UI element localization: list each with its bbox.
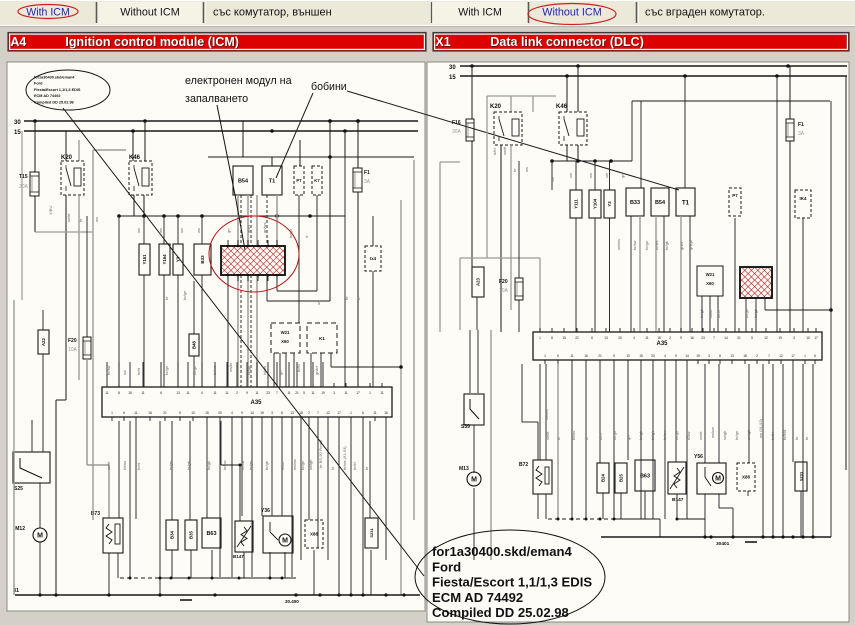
- svg-text:5: 5: [613, 354, 615, 358]
- svg-text:br/gb: br/gb: [753, 308, 758, 318]
- svg-text:11: 11: [186, 391, 190, 395]
- svg-text:13: 13: [290, 411, 294, 415]
- svg-text:12: 12: [326, 411, 330, 415]
- svg-text:F1: F1: [798, 122, 804, 128]
- svg-text:gn/rt: gn/rt: [246, 224, 251, 233]
- svg-text:br/sw: br/sw: [662, 430, 667, 440]
- svg-text:M13: M13: [459, 466, 469, 472]
- svg-text:3A: 3A: [364, 179, 371, 185]
- svg-text:br/bl: br/bl: [352, 462, 357, 470]
- svg-text:ws/rt: ws/rt: [698, 431, 703, 440]
- svg-text:18: 18: [743, 354, 747, 358]
- svg-text:br/gb: br/gb: [186, 460, 191, 470]
- svg-text:sw/gb: sw/gb: [308, 459, 313, 470]
- svg-text:30.400: 30.400: [285, 599, 299, 604]
- svg-text:K7: K7: [314, 178, 320, 183]
- svg-text:T1: T1: [269, 179, 275, 185]
- svg-text:br/gk: br/gk: [264, 461, 269, 470]
- svg-text:20: 20: [618, 336, 622, 340]
- svg-text:A22: A22: [41, 337, 46, 345]
- svg-text:30: 30: [449, 65, 456, 71]
- svg-text:B54: B54: [238, 179, 249, 185]
- svg-text:6: 6: [362, 411, 364, 415]
- svg-text:Fiesta/Escort 1,1/1,3 EDIS: Fiesta/Escort 1,1/1,3 EDIS: [34, 88, 81, 92]
- svg-text:18: 18: [657, 336, 661, 340]
- svg-text:15: 15: [128, 391, 132, 395]
- svg-text:sw/rt: sw/rt: [106, 461, 111, 470]
- svg-text:Y161: Y161: [142, 254, 147, 265]
- svg-text:M: M: [715, 476, 721, 483]
- svg-text:sw/rt: sw/rt: [708, 309, 713, 318]
- svg-text:br/rt: br/rt: [598, 432, 603, 440]
- svg-text:19: 19: [321, 391, 325, 395]
- svg-text:K20: K20: [61, 155, 73, 161]
- svg-text:13: 13: [730, 354, 734, 358]
- svg-text:sw/rt: sw/rt: [502, 146, 507, 155]
- svg-text:16: 16: [384, 411, 388, 415]
- svg-text:ws: ws: [94, 217, 99, 222]
- svg-text:for1a30400.skd/eman4: for1a30400.skd/eman4: [432, 544, 572, 559]
- svg-text:30A: 30A: [452, 129, 462, 135]
- svg-text:br/rt: br/rt: [136, 462, 141, 470]
- svg-text:W21: W21: [706, 272, 715, 277]
- svg-text:15: 15: [14, 130, 21, 136]
- svg-text:8: 8: [281, 411, 283, 415]
- svg-text:3: 3: [793, 336, 795, 340]
- svg-text:21: 21: [295, 391, 299, 395]
- svg-text:7: 7: [317, 411, 319, 415]
- svg-text:9: 9: [680, 336, 682, 340]
- svg-text:sw: sw: [604, 173, 609, 178]
- svg-text:16: 16: [690, 336, 694, 340]
- svg-text:sw: sw: [550, 177, 555, 182]
- svg-text:6: 6: [814, 354, 816, 358]
- svg-text:gn: gn: [226, 229, 231, 233]
- svg-text:br/gb: br/gb: [699, 308, 704, 318]
- svg-text:4: 4: [201, 391, 203, 395]
- svg-text:19: 19: [778, 336, 782, 340]
- svg-text:4: 4: [231, 411, 233, 415]
- svg-text:5: 5: [751, 336, 753, 340]
- svg-text:gn: gn: [620, 174, 625, 178]
- svg-text:11: 11: [255, 391, 259, 395]
- svg-text:запалването: запалването: [185, 93, 248, 105]
- svg-text:11: 11: [213, 391, 217, 395]
- svg-text:sw/ws: sw/ws: [616, 239, 621, 250]
- svg-text:W21: W21: [281, 330, 290, 335]
- svg-text:T1: T1: [682, 200, 690, 206]
- svg-text:16: 16: [148, 411, 152, 415]
- svg-text:M: M: [282, 538, 288, 545]
- svg-text:br/gk: br/gk: [650, 431, 655, 440]
- svg-text:sw: sw: [316, 300, 321, 305]
- svg-text:B24: B24: [601, 473, 606, 481]
- svg-text:21: 21: [598, 354, 602, 358]
- svg-text:ws: ws: [196, 228, 201, 233]
- svg-text:15: 15: [449, 75, 456, 81]
- svg-text:swgb: swgb: [722, 430, 727, 440]
- svg-text:2: 2: [669, 336, 671, 340]
- svg-text:5: 5: [179, 411, 181, 415]
- svg-text:17: 17: [337, 411, 341, 415]
- svg-text:br/gn: br/gn: [612, 431, 617, 440]
- svg-text:br/bld: br/bld: [782, 430, 787, 440]
- svg-text:IK4: IK4: [799, 196, 807, 201]
- svg-text:ws: ws: [588, 173, 593, 178]
- svg-text:F16: F16: [452, 120, 461, 126]
- svg-text:11: 11: [105, 391, 109, 395]
- svg-text:B147: B147: [233, 554, 244, 559]
- svg-text:10: 10: [806, 336, 810, 340]
- svg-text:Y104: Y104: [593, 198, 598, 209]
- svg-text:7: 7: [713, 336, 715, 340]
- svg-text:sw: sw: [568, 173, 573, 178]
- svg-text:20: 20: [651, 354, 655, 358]
- svg-text:11: 11: [225, 391, 229, 395]
- svg-text:X1: X1: [435, 35, 450, 49]
- svg-text:11: 11: [570, 354, 574, 358]
- svg-text:S231: S231: [369, 528, 374, 538]
- svg-text:sw: sw: [122, 370, 127, 375]
- svg-text:Ix4: Ix4: [370, 256, 377, 261]
- svg-text:B48: B48: [192, 340, 197, 348]
- svg-text:gn: gn: [626, 436, 631, 440]
- svg-text:2: 2: [308, 411, 310, 415]
- svg-text:7: 7: [768, 354, 770, 358]
- svg-text:K46: K46: [556, 104, 568, 110]
- svg-text:11: 11: [645, 336, 649, 340]
- svg-text:S25: S25: [14, 486, 23, 492]
- svg-text:br/rt: br/rt: [136, 367, 141, 375]
- svg-text:bl/ws: bl/ws: [571, 431, 576, 440]
- svg-text:Ford: Ford: [34, 82, 43, 86]
- svg-text:15: 15: [562, 336, 566, 340]
- svg-text:1: 1: [369, 391, 371, 395]
- svg-text:бобини: бобини: [311, 81, 347, 93]
- svg-text:Y36: Y36: [261, 508, 270, 514]
- svg-text:X88: X88: [310, 532, 319, 537]
- svg-text:ws/rt: ws/rt: [280, 461, 285, 470]
- svg-text:17: 17: [356, 391, 360, 395]
- svg-text:ws (91-93): ws (91-93): [758, 418, 763, 438]
- svg-text:20A: 20A: [19, 184, 29, 190]
- svg-text:10A: 10A: [499, 288, 509, 294]
- svg-text:sw/rt: sw/rt: [66, 213, 71, 222]
- svg-text:Ford: Ford: [432, 559, 461, 574]
- svg-text:11: 11: [311, 391, 315, 395]
- svg-text:9: 9: [241, 411, 243, 415]
- svg-text:5: 5: [303, 391, 305, 395]
- svg-text:23: 23: [266, 391, 270, 395]
- svg-text:Without ICM: Without ICM: [542, 7, 601, 19]
- svg-text:sw/ws: sw/ws: [544, 409, 549, 420]
- svg-text:1: 1: [111, 411, 113, 415]
- svg-text:19: 19: [260, 411, 264, 415]
- svg-text:br/gn: br/gn: [168, 461, 173, 470]
- svg-text:F20: F20: [499, 279, 508, 285]
- svg-text:3: 3: [333, 391, 335, 395]
- svg-text:8: 8: [719, 354, 721, 358]
- svg-text:bl: bl: [556, 437, 561, 440]
- svg-text:br/sw: br/sw: [222, 460, 227, 470]
- svg-text:sw: sw: [179, 228, 184, 233]
- svg-text:ws/sw: ws/sw: [292, 459, 297, 470]
- svg-text:11: 11: [344, 391, 348, 395]
- svg-text:Y/BU: Y/BU: [48, 206, 53, 215]
- svg-text:With ICM: With ICM: [458, 7, 502, 19]
- svg-text:br/ws (91-93): br/ws (91-93): [342, 446, 347, 470]
- svg-text:B54: B54: [655, 200, 666, 206]
- svg-text:br/gn: br/gn: [300, 461, 305, 470]
- svg-text:gn/ws: gn/ws: [262, 223, 267, 233]
- svg-text:br/gb: br/gb: [192, 365, 197, 375]
- svg-text:Ignition control module (ICM): Ignition control module (ICM): [65, 35, 239, 49]
- svg-text:rt/sw: rt/sw: [686, 431, 691, 440]
- svg-text:10: 10: [191, 411, 195, 415]
- svg-text:15: 15: [205, 411, 209, 415]
- svg-text:8: 8: [118, 391, 120, 395]
- svg-text:br/sw: br/sw: [240, 460, 245, 470]
- svg-text:B63: B63: [640, 474, 650, 480]
- svg-text:K1: K1: [319, 336, 325, 341]
- svg-text:br/bl: br/bl: [770, 432, 775, 440]
- svg-text:br/gb: br/gb: [638, 430, 643, 440]
- svg-text:13: 13: [176, 391, 180, 395]
- svg-text:br/gn: br/gn: [734, 431, 739, 440]
- svg-text:gn/gb: gn/gb: [688, 239, 693, 250]
- svg-text:Without ICM: Without ICM: [120, 7, 179, 19]
- svg-text:br/bl: br/bl: [296, 364, 301, 372]
- svg-text:br/ws: br/ws: [212, 365, 217, 375]
- svg-text:With ICM: With ICM: [26, 7, 70, 19]
- svg-text:gn: gn: [278, 371, 283, 375]
- svg-text:23: 23: [701, 336, 705, 340]
- svg-text:1: 1: [544, 354, 546, 358]
- svg-text:13: 13: [604, 336, 608, 340]
- svg-text:ECM AD 74492: ECM AD 74492: [432, 590, 523, 605]
- svg-text:A35: A35: [250, 400, 262, 406]
- svg-text:със вграден комутатор.: със вграден комутатор.: [645, 7, 765, 19]
- svg-text:11: 11: [134, 411, 138, 415]
- svg-text:15: 15: [639, 354, 643, 358]
- svg-text:B35: B35: [189, 530, 194, 538]
- svg-text:11: 11: [380, 391, 384, 395]
- svg-text:1: 1: [804, 354, 806, 358]
- svg-text:br/bl: br/bl: [716, 310, 721, 318]
- svg-text:br/sw: br/sw: [632, 240, 637, 250]
- svg-text:A23: A23: [476, 277, 481, 285]
- svg-text:B63: B63: [206, 531, 216, 537]
- svg-text:Y164: Y164: [162, 254, 167, 265]
- svg-text:S39: S39: [461, 424, 470, 430]
- svg-text:br/gn: br/gn: [246, 366, 251, 375]
- svg-text:for1a30400.skd/eman4: for1a30400.skd/eman4: [34, 76, 75, 80]
- svg-text:Y3: Y3: [607, 201, 612, 207]
- svg-text:S231: S231: [799, 471, 804, 481]
- svg-text:3: 3: [271, 411, 273, 415]
- svg-text:rt/bl: rt/bl: [492, 148, 497, 155]
- svg-text:sw/gb: sw/gb: [746, 429, 751, 440]
- svg-text:11: 11: [373, 411, 377, 415]
- svg-text:M12: M12: [15, 526, 25, 532]
- svg-text:br/gn: br/gn: [164, 366, 169, 375]
- svg-text:22: 22: [575, 336, 579, 340]
- svg-text:4: 4: [633, 336, 635, 340]
- svg-text:br/gn: br/gn: [248, 461, 253, 470]
- svg-text:11: 11: [141, 391, 145, 395]
- svg-text:2: 2: [756, 354, 758, 358]
- svg-text:A4: A4: [10, 35, 26, 49]
- svg-text:X88: X88: [742, 475, 751, 480]
- svg-text:Y111: Y111: [574, 199, 579, 209]
- svg-text:със комутатор, външен: със комутатор, външен: [213, 7, 332, 19]
- svg-text:A35: A35: [656, 341, 668, 347]
- svg-text:br/gn: br/gn: [288, 229, 293, 238]
- svg-text:F20: F20: [68, 338, 77, 344]
- svg-text:2: 2: [236, 391, 238, 395]
- svg-text:M: M: [471, 477, 477, 484]
- svg-text:X60: X60: [706, 281, 714, 286]
- svg-text:14: 14: [724, 336, 728, 340]
- svg-text:електронен модул на: електронен модул на: [185, 75, 292, 87]
- svg-text:Y56: Y56: [694, 454, 703, 460]
- svg-text:4: 4: [664, 354, 666, 358]
- svg-text:9: 9: [675, 354, 677, 358]
- svg-text:7: 7: [276, 391, 278, 395]
- svg-text:ws/br: ws/br: [228, 362, 233, 372]
- svg-text:sw: sw: [136, 228, 141, 233]
- svg-text:br/gk: br/gk: [206, 461, 211, 470]
- svg-text:T15: T15: [19, 174, 28, 180]
- svg-text:P7: P7: [732, 193, 738, 198]
- svg-text:20: 20: [218, 411, 222, 415]
- svg-text:19: 19: [696, 354, 700, 358]
- svg-text:Fiesta/Escort 1,1/1,3 EDIS: Fiesta/Escort 1,1/1,3 EDIS: [432, 575, 592, 590]
- svg-text:br/ws: br/ws: [654, 240, 659, 250]
- svg-text:B25: B25: [619, 473, 624, 481]
- svg-text:21: 21: [737, 336, 741, 340]
- svg-text:9: 9: [246, 391, 248, 395]
- svg-text:14: 14: [250, 411, 254, 415]
- svg-text:X60: X60: [281, 339, 289, 344]
- svg-text:sw/rt: sw/rt: [545, 431, 550, 440]
- svg-text:Compiled DD 25.02.98: Compiled DD 25.02.98: [432, 605, 569, 620]
- svg-text:30401: 30401: [716, 541, 730, 547]
- svg-text:B33: B33: [200, 255, 205, 264]
- svg-text:11: 11: [287, 391, 291, 395]
- svg-text:6: 6: [123, 411, 125, 415]
- svg-text:gn/rt: gn/rt: [679, 241, 684, 250]
- svg-text:br/gn: br/gn: [182, 291, 187, 300]
- svg-text:21: 21: [163, 411, 167, 415]
- svg-text:F1: F1: [364, 170, 370, 176]
- svg-text:K46: K46: [129, 155, 141, 161]
- svg-text:10A: 10A: [68, 347, 78, 353]
- svg-text:6: 6: [557, 354, 559, 358]
- svg-text:P7: P7: [296, 178, 302, 183]
- svg-text:3: 3: [708, 354, 710, 358]
- svg-text:6: 6: [591, 336, 593, 340]
- svg-text:br/gn: br/gn: [674, 431, 679, 440]
- svg-text:8: 8: [551, 336, 553, 340]
- svg-text:B72: B72: [519, 462, 528, 468]
- svg-text:M: M: [37, 533, 43, 540]
- svg-text:br/sw: br/sw: [106, 365, 111, 375]
- svg-text:Data link connector (DLC): Data link connector (DLC): [490, 35, 644, 49]
- svg-text:12: 12: [764, 336, 768, 340]
- svg-text:30: 30: [14, 120, 21, 126]
- svg-text:B73: B73: [91, 511, 100, 517]
- svg-text:10: 10: [626, 354, 630, 358]
- svg-text:Compiled DD 25.02.98: Compiled DD 25.02.98: [34, 100, 74, 104]
- svg-text:1: 1: [539, 336, 541, 340]
- svg-text:17: 17: [814, 336, 818, 340]
- svg-text:B147: B147: [672, 497, 684, 503]
- svg-text:16: 16: [584, 354, 588, 358]
- svg-text:ECM AD 74492: ECM AD 74492: [34, 94, 60, 98]
- svg-text:br/gn: br/gn: [644, 241, 649, 250]
- svg-text:B33: B33: [630, 200, 640, 206]
- svg-text:6: 6: [160, 391, 162, 395]
- svg-text:3A: 3A: [798, 131, 805, 137]
- svg-text:br/gn: br/gn: [744, 309, 749, 318]
- svg-text:ws: ws: [524, 167, 529, 172]
- svg-text:17: 17: [791, 354, 795, 358]
- svg-text:1: 1: [350, 411, 352, 415]
- svg-text:B34: B34: [170, 530, 175, 538]
- svg-text:K20: K20: [490, 104, 502, 110]
- svg-text:bl/ws: bl/ws: [122, 461, 127, 470]
- svg-text:gn/br: gn/br: [314, 365, 319, 375]
- svg-text:ws/sw: ws/sw: [710, 427, 715, 438]
- svg-text:br/gb: br/gb: [664, 240, 669, 250]
- svg-text:14: 14: [685, 354, 689, 358]
- svg-text:12: 12: [779, 354, 783, 358]
